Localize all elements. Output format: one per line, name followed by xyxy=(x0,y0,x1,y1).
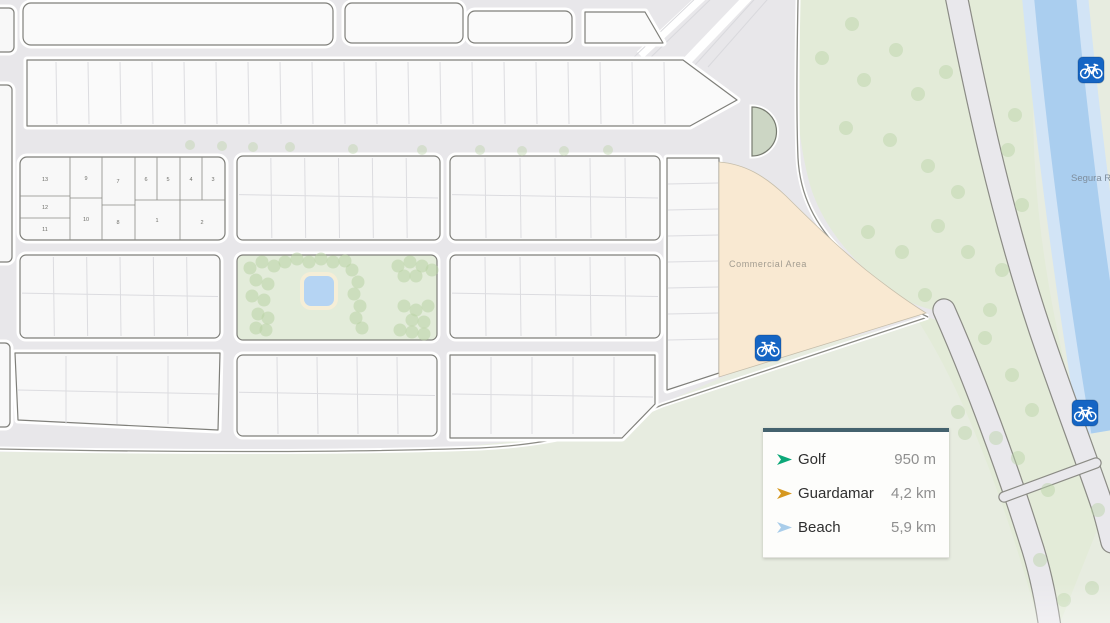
park-tree xyxy=(258,294,271,307)
tree xyxy=(857,73,871,87)
plot-number: 8 xyxy=(116,220,119,226)
park-tree xyxy=(262,278,275,291)
tree xyxy=(983,303,997,317)
tree xyxy=(995,263,1009,277)
park-tree xyxy=(315,253,328,266)
legend-value: 4,2 km xyxy=(891,485,936,502)
park-tree xyxy=(279,256,292,269)
tree xyxy=(1015,198,1029,212)
park-tree xyxy=(346,264,359,277)
street-tree xyxy=(185,140,195,150)
park-tree xyxy=(291,253,304,266)
street-tree xyxy=(517,146,527,156)
bottom-fade xyxy=(0,583,1110,623)
bicycle-icon xyxy=(755,335,781,361)
park-tree xyxy=(410,270,423,283)
golf-arrow-icon xyxy=(776,453,798,466)
plot-number: 3 xyxy=(211,177,214,183)
park-tree xyxy=(303,256,316,269)
legend-label: Beach xyxy=(798,519,891,536)
plot-number: 10 xyxy=(83,217,89,223)
plot-number: 12 xyxy=(42,205,48,211)
park-tree xyxy=(406,326,419,339)
tree xyxy=(1025,403,1039,417)
park-tree xyxy=(244,262,257,275)
park-tree xyxy=(422,300,435,313)
city-block xyxy=(20,157,225,240)
site-plan-map: 13976543121081112 Commercial Area Segura… xyxy=(0,0,1110,623)
plot-number: 7 xyxy=(116,179,119,185)
park-tree xyxy=(398,300,411,313)
plot-number: 2 xyxy=(200,220,203,226)
tree xyxy=(911,87,925,101)
city-block xyxy=(0,8,14,52)
tree xyxy=(951,405,965,419)
plot-number: 5 xyxy=(166,177,169,183)
tree xyxy=(1001,143,1015,157)
street-tree xyxy=(248,142,258,152)
city-blocks xyxy=(0,3,737,438)
strip-block xyxy=(23,3,333,45)
plot-number: 1 xyxy=(155,218,158,224)
tree xyxy=(889,43,903,57)
street-tree xyxy=(603,145,613,155)
legend-row-beach: Beach 5,9 km xyxy=(776,510,936,544)
street-tree xyxy=(417,145,427,155)
tree xyxy=(1041,483,1055,497)
park-tree xyxy=(260,324,273,337)
tree xyxy=(978,331,992,345)
park-tree xyxy=(418,316,431,329)
park-tree xyxy=(246,290,259,303)
legend-label: Golf xyxy=(798,451,894,468)
strip-block-subdivided xyxy=(27,60,737,126)
plot-number: 9 xyxy=(84,176,87,182)
bicycle-icon xyxy=(1072,400,1098,426)
street-tree xyxy=(348,144,358,154)
tree xyxy=(931,219,945,233)
strip-block xyxy=(345,3,463,43)
tree xyxy=(1091,503,1105,517)
legend-row-golf: Golf 950 m xyxy=(776,442,936,476)
street-tree xyxy=(559,146,569,156)
plot-number: 11 xyxy=(42,227,48,233)
park-tree xyxy=(352,276,365,289)
tree xyxy=(839,121,853,135)
plot-number: 6 xyxy=(144,177,147,183)
legend-value: 950 m xyxy=(894,451,936,468)
park-tree xyxy=(356,322,369,335)
park-tree xyxy=(398,270,411,283)
park-tree xyxy=(394,324,407,337)
plot-number: 13 xyxy=(42,177,48,183)
city-block xyxy=(0,343,10,427)
tree xyxy=(815,51,829,65)
tree xyxy=(961,245,975,259)
pond xyxy=(302,274,336,308)
street-tree xyxy=(217,141,227,151)
tree xyxy=(861,225,875,239)
city-block xyxy=(0,85,12,262)
tree xyxy=(1011,451,1025,465)
park-tree xyxy=(327,256,340,269)
tree xyxy=(918,288,932,302)
tree xyxy=(895,245,909,259)
park-tree xyxy=(250,274,263,287)
park-tree xyxy=(354,300,367,313)
street-tree xyxy=(285,142,295,152)
park-tree xyxy=(404,256,417,269)
bicycle-icon xyxy=(1078,57,1104,83)
tree xyxy=(958,426,972,440)
legend-label: Guardamar xyxy=(798,485,891,502)
tree xyxy=(1008,108,1022,122)
park-tree xyxy=(348,288,361,301)
strip-block xyxy=(468,11,572,43)
river-label: Segura River xyxy=(1071,173,1110,184)
tree xyxy=(989,431,1003,445)
beach-arrow-icon xyxy=(776,521,798,534)
legend-row-guardamar: Guardamar 4,2 km xyxy=(776,476,936,510)
park-tree xyxy=(418,328,431,341)
park-tree xyxy=(406,314,419,327)
street-tree xyxy=(475,145,485,155)
legend-value: 5,9 km xyxy=(891,519,936,536)
plot-number: 4 xyxy=(189,177,192,183)
tree xyxy=(1033,553,1047,567)
tree xyxy=(951,185,965,199)
park-tree xyxy=(426,264,439,277)
tree xyxy=(883,133,897,147)
park xyxy=(237,253,439,341)
park-tree xyxy=(262,312,275,325)
tree xyxy=(939,65,953,79)
strip-parcels-block xyxy=(667,158,719,390)
tree xyxy=(845,17,859,31)
park-tree xyxy=(256,256,269,269)
tree xyxy=(1005,368,1019,382)
commercial-area-label: Commercial Area xyxy=(729,259,807,269)
distance-legend: Golf 950 m Guardamar 4,2 km Beach 5,9 km xyxy=(763,428,949,558)
tree xyxy=(921,159,935,173)
guardamar-arrow-icon xyxy=(776,487,798,500)
